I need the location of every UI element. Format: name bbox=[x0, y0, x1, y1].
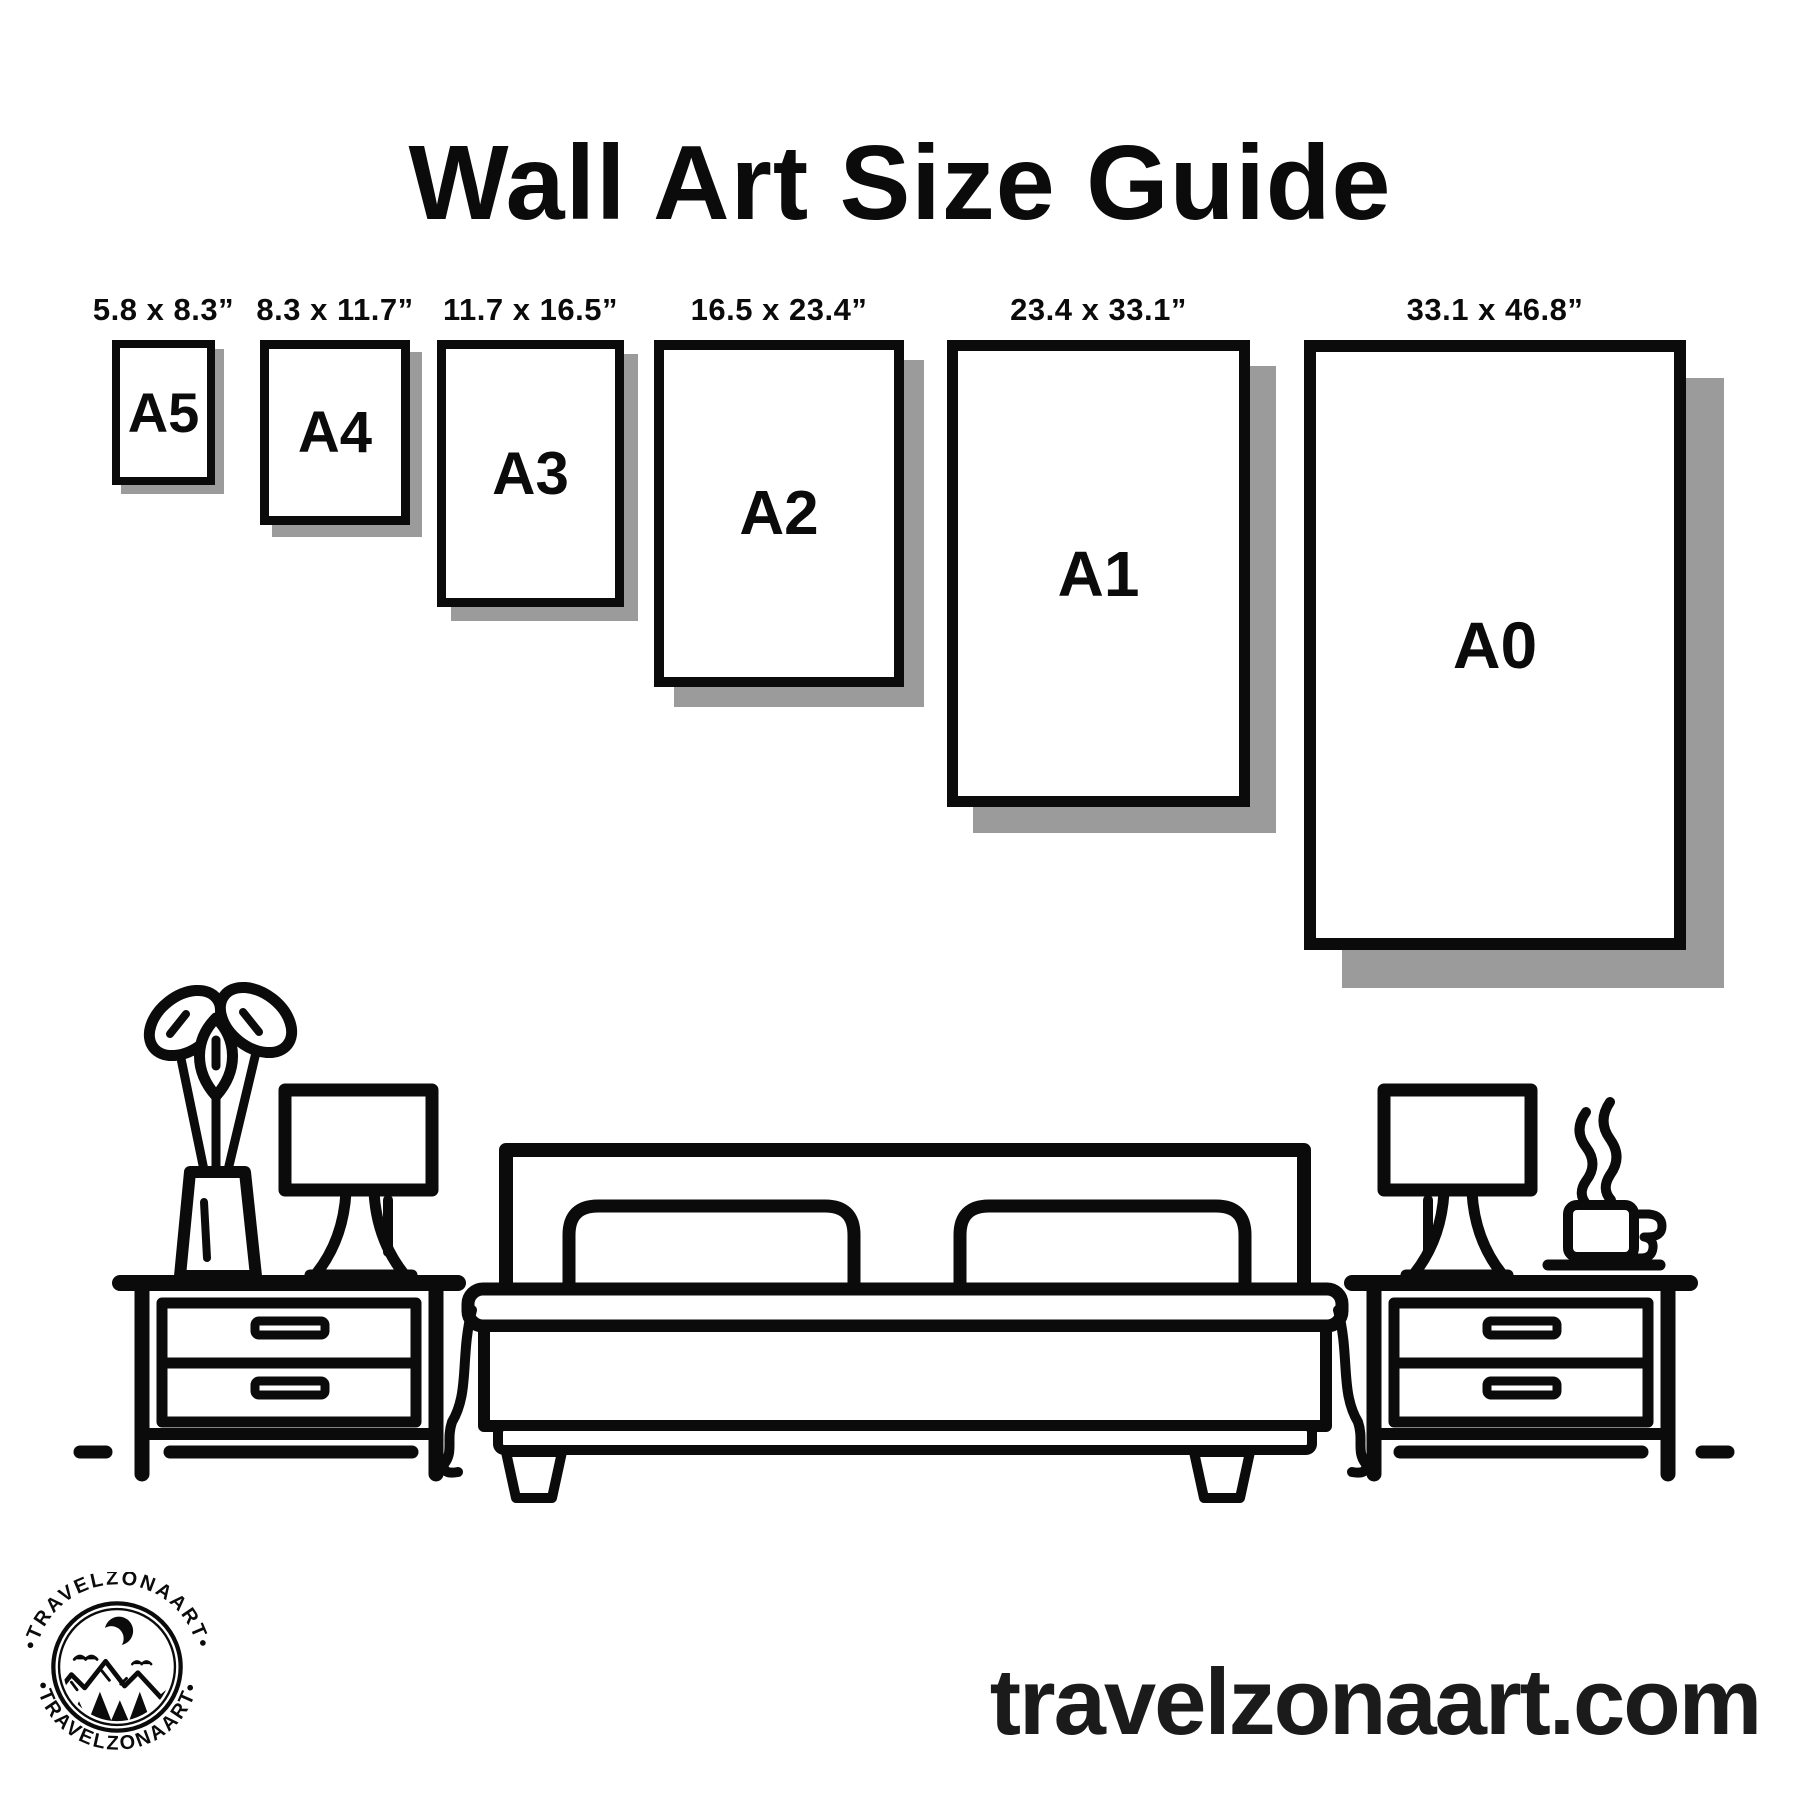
nightstand-left bbox=[120, 1283, 458, 1474]
frame-dimensions-label: 16.5 x 23.4” bbox=[691, 292, 868, 328]
bed-foot-left bbox=[506, 1452, 562, 1498]
bird-icon bbox=[74, 1656, 97, 1659]
brand-logo: •TRAVELZONAART• •TRAVELZONAART• bbox=[22, 1572, 212, 1762]
pillow-left bbox=[569, 1206, 854, 1292]
frame-box: A5 bbox=[112, 340, 215, 485]
size-frame-a5: 5.8 x 8.3” A5 bbox=[112, 340, 215, 485]
size-frame-a2: 16.5 x 23.4” A2 bbox=[654, 340, 904, 687]
bed-rail bbox=[498, 1426, 1312, 1450]
website-url: travelzonaart.com bbox=[950, 1648, 1800, 1756]
frame-box: A1 bbox=[947, 340, 1250, 807]
frame-dimensions-label: 33.1 x 46.8” bbox=[1407, 292, 1584, 328]
blanket-drape-left bbox=[444, 1310, 472, 1473]
bed-icon bbox=[444, 1150, 1366, 1498]
frame-dimensions-label: 11.7 x 16.5” bbox=[443, 292, 618, 328]
table-lamp-left-icon bbox=[285, 1090, 432, 1275]
size-frame-a0: 33.1 x 46.8” A0 bbox=[1304, 340, 1686, 950]
frame-size-letter: A3 bbox=[492, 439, 569, 508]
bedroom-illustration bbox=[0, 960, 1800, 1520]
blanket-drape-right bbox=[1338, 1310, 1366, 1473]
table-lamp-right-icon bbox=[1384, 1090, 1531, 1275]
frame-box: A2 bbox=[654, 340, 904, 687]
frame-dimensions-label: 23.4 x 33.1” bbox=[1010, 292, 1187, 328]
steam bbox=[1604, 1102, 1617, 1200]
nightstand-right bbox=[1352, 1283, 1690, 1474]
bird-icon bbox=[132, 1661, 151, 1664]
frame-size-letter: A5 bbox=[128, 380, 200, 445]
vase bbox=[180, 1172, 256, 1276]
bed-frame bbox=[484, 1326, 1326, 1426]
frame-box: A0 bbox=[1304, 340, 1686, 950]
frame-size-letter: A1 bbox=[1058, 537, 1140, 611]
frame-box: A3 bbox=[437, 340, 624, 607]
frame-size-letter: A0 bbox=[1453, 607, 1537, 683]
size-frame-a3: 11.7 x 16.5” A3 bbox=[437, 340, 624, 607]
frame-box: A4 bbox=[260, 340, 410, 525]
size-frames-row: 5.8 x 8.3” A5 8.3 x 11.7” A4 11.7 x 16.5… bbox=[0, 0, 1800, 1800]
size-frame-a1: 23.4 x 33.1” A1 bbox=[947, 340, 1250, 807]
steam bbox=[1580, 1112, 1593, 1205]
coffee-cup-icon bbox=[1548, 1102, 1662, 1265]
frame-dimensions-label: 8.3 x 11.7” bbox=[256, 292, 413, 328]
size-frame-a4: 8.3 x 11.7” A4 bbox=[260, 340, 410, 525]
pillow-right bbox=[960, 1206, 1245, 1292]
frame-size-letter: A4 bbox=[298, 399, 372, 466]
bed-foot-right bbox=[1194, 1452, 1250, 1498]
frame-dimensions-label: 5.8 x 8.3” bbox=[93, 292, 234, 328]
frame-size-letter: A2 bbox=[739, 478, 818, 549]
